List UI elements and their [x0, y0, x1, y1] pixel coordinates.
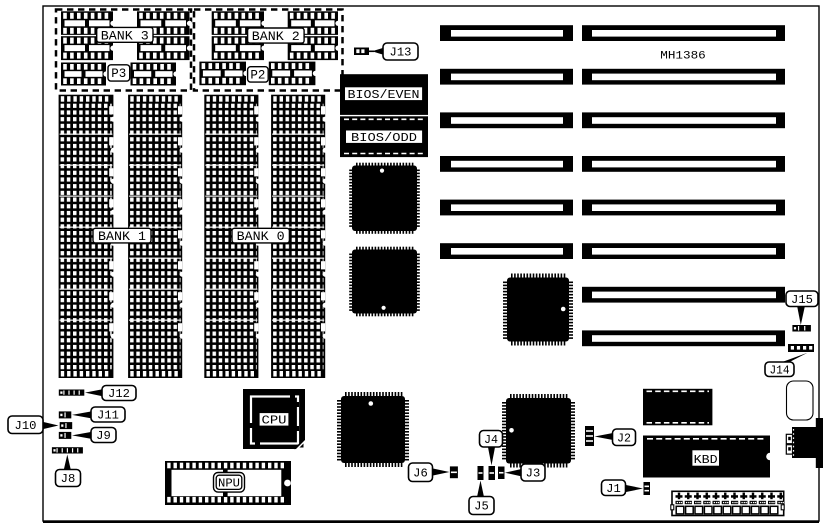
- svg-text:J15: J15: [791, 293, 813, 307]
- svg-text:J12: J12: [108, 387, 130, 401]
- svg-text:P2: P2: [250, 69, 265, 83]
- svg-text:J14: J14: [770, 363, 790, 377]
- svg-text:MH1386: MH1386: [660, 50, 706, 62]
- svg-text:BANK 3: BANK 3: [101, 29, 149, 43]
- svg-text:BANK 1: BANK 1: [98, 230, 146, 244]
- svg-text:J10: J10: [15, 419, 37, 433]
- svg-text:J1: J1: [606, 482, 621, 496]
- svg-text:CPU: CPU: [262, 414, 287, 428]
- svg-text:J13: J13: [390, 46, 412, 60]
- svg-text:J4: J4: [484, 433, 498, 447]
- svg-text:J9: J9: [96, 429, 111, 443]
- svg-text:P3: P3: [111, 67, 126, 81]
- svg-text:J5: J5: [474, 500, 489, 514]
- svg-text:BIOS/EVEN: BIOS/EVEN: [348, 88, 420, 102]
- svg-text:BANK 2: BANK 2: [252, 30, 300, 44]
- svg-text:J3: J3: [526, 467, 541, 481]
- svg-text:BANK 0: BANK 0: [237, 230, 285, 244]
- svg-text:J2: J2: [617, 431, 631, 445]
- svg-text:J6: J6: [413, 466, 428, 480]
- svg-text:BIOS/ODD: BIOS/ODD: [351, 131, 417, 145]
- svg-text:J11: J11: [97, 409, 119, 423]
- svg-text:NPU: NPU: [218, 477, 240, 490]
- svg-text:KBD: KBD: [694, 453, 718, 467]
- svg-text:J8: J8: [61, 472, 76, 486]
